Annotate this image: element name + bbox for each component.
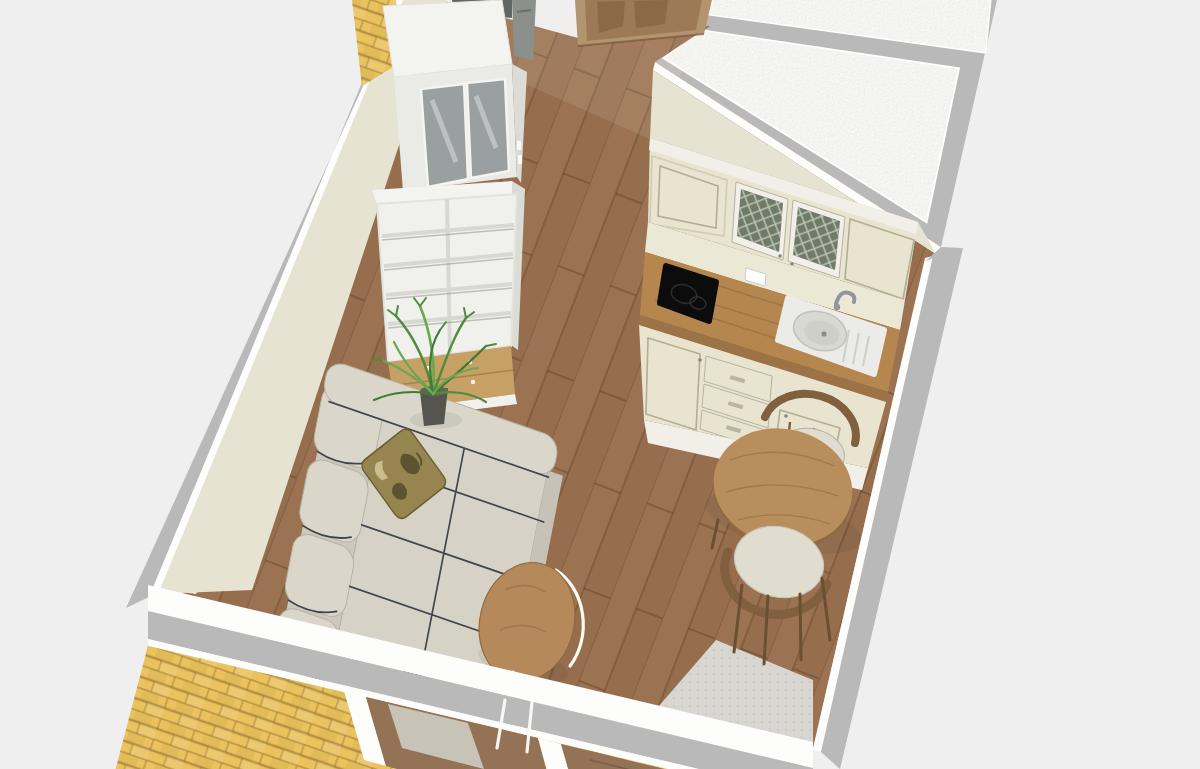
wardrobe-handle <box>517 141 521 150</box>
door-panel <box>634 0 668 28</box>
floor-plan-canvas <box>0 0 1200 769</box>
wardrobe-handle <box>518 155 522 164</box>
wardrobe-top <box>383 0 512 77</box>
wardrobe[interactable] <box>383 0 527 191</box>
